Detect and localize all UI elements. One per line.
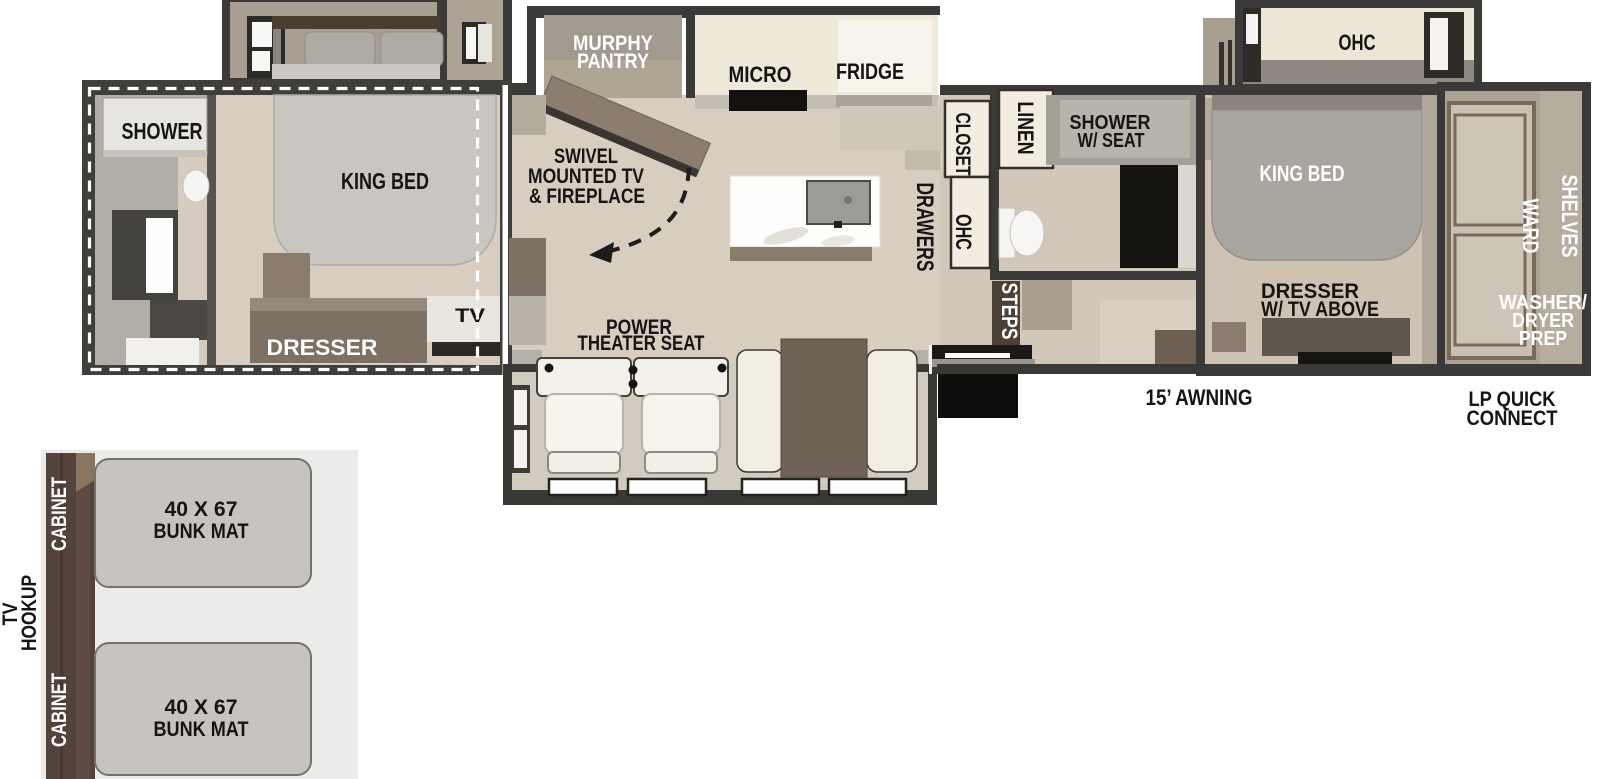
svg-text:PREP: PREP (1519, 327, 1567, 350)
svg-text:KING BED: KING BED (1260, 161, 1345, 186)
svg-text:PANTRY: PANTRY (577, 49, 649, 73)
svg-text:CLOSET: CLOSET (951, 113, 975, 176)
svg-text:& FIREPLACE: & FIREPLACE (529, 184, 645, 208)
svg-text:CABINET: CABINET (48, 477, 71, 551)
svg-text:BUNK MAT: BUNK MAT (154, 520, 249, 543)
svg-text:OHC: OHC (1339, 30, 1376, 55)
svg-text:KING BED: KING BED (341, 168, 429, 194)
svg-text:W/ TV ABOVE: W/ TV ABOVE (1261, 298, 1379, 321)
svg-text:CONNECT: CONNECT (1467, 406, 1558, 430)
svg-text:LINEN: LINEN (1013, 102, 1038, 155)
svg-text:DRESSER: DRESSER (267, 335, 378, 360)
svg-text:DRAWERS: DRAWERS (911, 183, 938, 272)
svg-text:FRIDGE: FRIDGE (836, 59, 904, 84)
svg-text:40 X 67: 40 X 67 (165, 498, 238, 521)
svg-text:SHOWER: SHOWER (122, 118, 203, 144)
svg-text:WARD: WARD (1518, 199, 1543, 254)
svg-text:15’ AWNING: 15’ AWNING (1146, 385, 1253, 410)
svg-text:BUNK MAT: BUNK MAT (154, 718, 249, 741)
svg-text:STEPS: STEPS (997, 283, 1022, 340)
svg-text:CABINET: CABINET (48, 673, 71, 747)
svg-text:TV: TV (455, 306, 485, 327)
svg-text:THEATER SEAT: THEATER SEAT (578, 331, 705, 355)
svg-text:SHELVES: SHELVES (1557, 175, 1582, 258)
svg-text:HOOKUP: HOOKUP (18, 575, 41, 651)
svg-text:OHC: OHC (951, 214, 976, 250)
svg-text:W/ SEAT: W/ SEAT (1078, 130, 1145, 152)
svg-text:MICRO: MICRO (729, 62, 792, 87)
svg-text:40 X 67: 40 X 67 (165, 696, 238, 719)
